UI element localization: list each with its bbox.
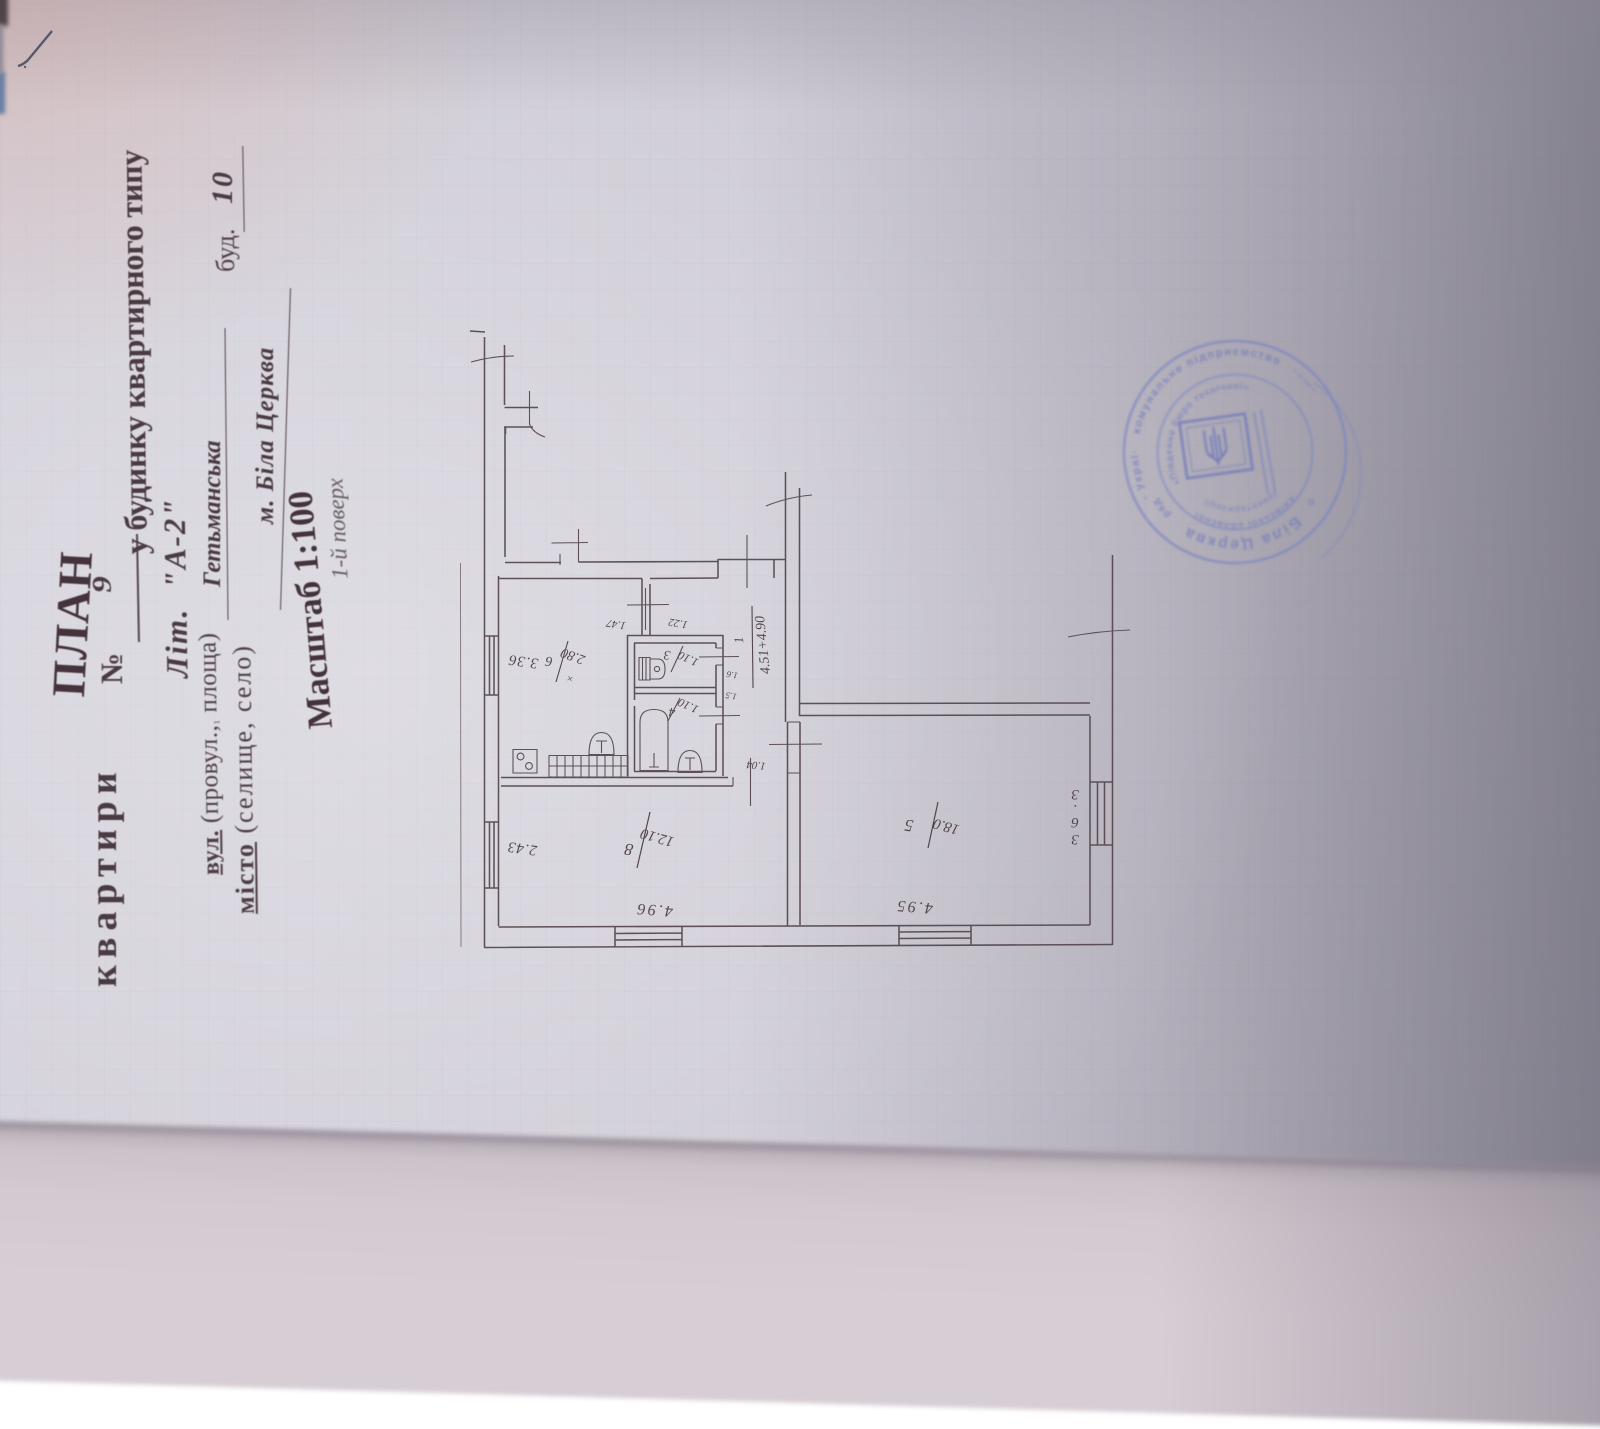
svg-text:2.80: 2.80 xyxy=(559,644,587,666)
svg-text:1: 1 xyxy=(731,636,747,644)
svg-text:1.22: 1.22 xyxy=(667,615,689,630)
svg-text:12.10: 12.10 xyxy=(638,825,675,850)
svg-text:×: × xyxy=(565,671,575,685)
svg-text:4: 4 xyxy=(667,705,676,721)
svg-text:3: 3 xyxy=(662,648,672,664)
svg-text:1.6: 1.6 xyxy=(725,669,738,681)
svg-text:5: 5 xyxy=(903,815,914,835)
svg-text:8: 8 xyxy=(623,839,635,859)
svg-text:6: 6 xyxy=(1071,814,1079,830)
svg-text:3: 3 xyxy=(1071,786,1080,802)
svg-text:6: 6 xyxy=(545,653,554,669)
svg-text:4.96: 4.96 xyxy=(634,900,673,920)
svg-text:4.95: 4.95 xyxy=(894,897,933,917)
svg-text:3.36: 3.36 xyxy=(507,651,540,671)
svg-text:· Украї· комунальне підприєм: · Украї· комунальне підприємство ·–—· xyxy=(1129,346,1321,502)
svg-text:1.47: 1.47 xyxy=(605,616,627,631)
svg-text:4.51+4.90: 4.51+4.90 xyxy=(753,615,774,675)
svg-text:1.5: 1.5 xyxy=(724,690,737,702)
svg-text:3: 3 xyxy=(1071,831,1080,847)
svg-text:2.43: 2.43 xyxy=(506,838,538,858)
svg-text:1.04: 1.04 xyxy=(745,758,766,772)
svg-text:1.10: 1.10 xyxy=(676,648,701,670)
svg-text:18.0: 18.0 xyxy=(931,815,961,838)
